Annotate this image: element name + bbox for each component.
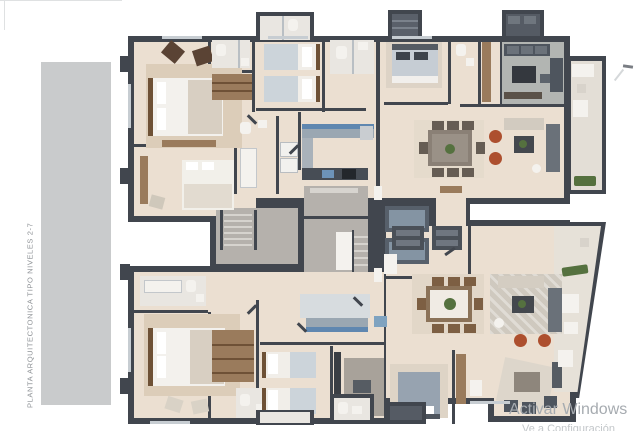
bathtub	[144, 280, 182, 293]
dining-chair	[432, 121, 444, 130]
kitchen-sink	[322, 170, 334, 178]
sink	[466, 58, 474, 66]
kitchen-counter	[306, 318, 368, 327]
elevator-door	[374, 268, 382, 282]
bed-bench	[162, 140, 216, 147]
walk-in-closet	[212, 74, 252, 100]
partition	[478, 36, 481, 104]
fixture	[470, 380, 482, 396]
pillow	[157, 332, 166, 354]
bed-headboard	[316, 44, 320, 70]
bathtub	[240, 148, 257, 188]
closet-shelf	[392, 20, 418, 22]
sink	[241, 58, 249, 66]
terracotta-pouf	[514, 334, 527, 347]
cushion	[508, 16, 520, 24]
plant	[518, 300, 526, 308]
bath-floor	[260, 412, 310, 423]
pillow	[157, 108, 166, 130]
closet-shelf	[396, 240, 420, 246]
pilaster	[120, 168, 130, 184]
plant	[445, 144, 455, 154]
planter	[574, 176, 596, 186]
partition	[276, 116, 279, 194]
sink	[358, 42, 368, 50]
pillow	[414, 52, 428, 60]
dining-chair	[417, 298, 426, 310]
stair-tread	[354, 250, 368, 252]
windows-activation-watermark: Activar Windows	[509, 401, 627, 419]
window	[128, 84, 131, 128]
stair-tread	[224, 244, 252, 246]
stair-wall	[254, 210, 257, 250]
partition	[460, 104, 564, 107]
pillow	[268, 354, 278, 374]
kitchen-counter	[302, 138, 313, 172]
stair-tread	[354, 243, 368, 245]
dining-chair	[476, 142, 485, 154]
balcony-chair	[558, 350, 573, 367]
pillow	[302, 79, 312, 99]
stair-void	[336, 232, 352, 270]
toilet	[186, 280, 196, 292]
dryer	[280, 158, 298, 173]
sink	[196, 294, 204, 302]
shower-glass	[352, 40, 354, 74]
stair-tread	[354, 236, 368, 238]
toilet	[338, 402, 348, 414]
edge-line	[4, 0, 5, 30]
elevator-door	[374, 186, 382, 200]
toilet	[240, 394, 250, 406]
terracotta-pouf	[489, 152, 502, 165]
closet-rail	[212, 90, 252, 92]
sectional-sofa	[550, 58, 563, 92]
dining-chair	[464, 324, 476, 333]
pilaster	[120, 378, 130, 394]
dining-chair	[448, 277, 460, 286]
partition	[260, 342, 386, 345]
walk-in-closet	[212, 330, 254, 382]
pillow	[157, 356, 166, 378]
window	[470, 401, 510, 404]
stair-tread	[224, 238, 252, 240]
partition	[322, 40, 325, 112]
closet	[456, 354, 466, 404]
closet	[390, 406, 422, 420]
balcony-chair	[573, 100, 588, 117]
toilet	[456, 44, 466, 56]
plant	[519, 140, 527, 148]
balcony-top-floor	[571, 61, 602, 190]
bed-blanket	[290, 352, 316, 378]
pillow	[157, 82, 166, 104]
dining-chair	[462, 121, 474, 130]
partition	[298, 112, 301, 170]
desk	[514, 372, 540, 392]
closet-rail	[212, 372, 254, 374]
closet-shelf	[392, 27, 418, 29]
closet	[392, 14, 418, 36]
coffee-table	[353, 380, 371, 393]
tv-console	[504, 92, 542, 99]
dining-chair	[432, 324, 444, 333]
partition	[452, 350, 455, 424]
cushion	[535, 46, 547, 54]
stair-tread	[224, 226, 252, 228]
closet-rail	[212, 82, 252, 84]
cushion	[521, 46, 533, 54]
pillow	[268, 390, 278, 410]
dining-chair	[432, 168, 444, 177]
sofa	[546, 124, 560, 172]
pillow	[186, 162, 198, 170]
toilet	[216, 44, 226, 56]
dining-chair	[432, 277, 444, 286]
plant	[444, 298, 456, 310]
partition	[448, 36, 451, 104]
stair-landing	[310, 188, 358, 193]
cursor-mark-tail	[614, 69, 624, 81]
fixture	[384, 254, 397, 274]
closet-shelf	[396, 230, 420, 236]
window	[128, 328, 131, 372]
plan-title-vertical: PLANTA ARQUITECTONICA TIPO NIVELES 2-7	[21, 234, 39, 396]
stair-tread	[224, 220, 252, 222]
appliance	[374, 316, 387, 327]
screenshot: PLANTA ARQUITECTONICA TIPO NIVELES 2-7	[0, 0, 640, 431]
sink	[258, 120, 267, 128]
closet-rail	[212, 358, 254, 360]
kitchen-backsplash	[306, 327, 368, 332]
stair-tread	[354, 257, 368, 259]
cursor-mark	[623, 64, 633, 68]
dining-chair	[419, 142, 428, 154]
sofa	[548, 288, 562, 332]
closet-shelf	[436, 230, 458, 236]
partition	[384, 102, 448, 105]
balcony-chair	[562, 294, 579, 313]
bed-blanket	[184, 184, 232, 208]
pillow	[302, 47, 312, 67]
balcony-table	[580, 238, 589, 247]
side-table	[532, 164, 541, 173]
edge-line	[0, 0, 122, 1]
sink	[352, 406, 362, 414]
stair-tread	[354, 264, 368, 266]
sofa	[504, 118, 544, 130]
shower-glass	[238, 40, 240, 68]
dining-chair	[474, 298, 483, 310]
stair-divider	[304, 216, 368, 219]
pilaster	[120, 264, 130, 280]
stair-wall	[220, 210, 223, 250]
cushion	[524, 16, 536, 24]
closet	[482, 42, 491, 102]
pillow	[202, 162, 214, 170]
partition	[252, 40, 255, 112]
party-wall	[376, 36, 380, 204]
windows-activation-watermark-line2: Ve a Configuración para activar Windows.	[522, 423, 640, 431]
window	[162, 36, 202, 39]
sofa	[498, 276, 544, 288]
dining-chair	[464, 277, 476, 286]
closet-shelf	[436, 240, 458, 246]
bed-headboard	[262, 352, 266, 378]
dining-chair	[447, 121, 459, 130]
side-table	[494, 318, 504, 328]
bed-blanket	[264, 76, 298, 102]
ottoman	[540, 74, 550, 83]
bed-foot	[392, 76, 438, 83]
closet-rail	[212, 344, 254, 346]
lounge-chair	[572, 64, 594, 77]
bed-headboard	[316, 76, 320, 102]
terracotta-pouf	[538, 334, 551, 347]
fridge	[360, 126, 373, 140]
bed-blanket	[264, 44, 298, 70]
service-core-floor	[216, 208, 298, 264]
window	[392, 36, 432, 39]
window	[268, 36, 308, 39]
stove	[342, 169, 356, 179]
toilet	[288, 19, 298, 31]
coffee-table	[512, 66, 536, 83]
terracotta-pouf	[489, 130, 502, 143]
dining-chair	[462, 168, 474, 177]
dining-chair	[448, 324, 460, 333]
cushion	[507, 46, 519, 54]
toilet	[336, 46, 347, 59]
pilaster	[120, 56, 130, 72]
window	[150, 421, 190, 424]
closet	[140, 156, 148, 204]
dining-chair	[447, 168, 459, 177]
lobby-bench	[440, 186, 462, 193]
kitchen-island	[302, 168, 368, 180]
stair-tread	[224, 232, 252, 234]
toilet	[240, 122, 251, 134]
gray-bar	[41, 62, 111, 405]
partition	[468, 222, 471, 278]
balcony-table	[577, 84, 586, 93]
partition	[256, 108, 366, 111]
pillow	[396, 52, 410, 60]
balcony-table	[564, 322, 578, 334]
partition	[134, 310, 208, 313]
stair-tread	[224, 214, 252, 216]
